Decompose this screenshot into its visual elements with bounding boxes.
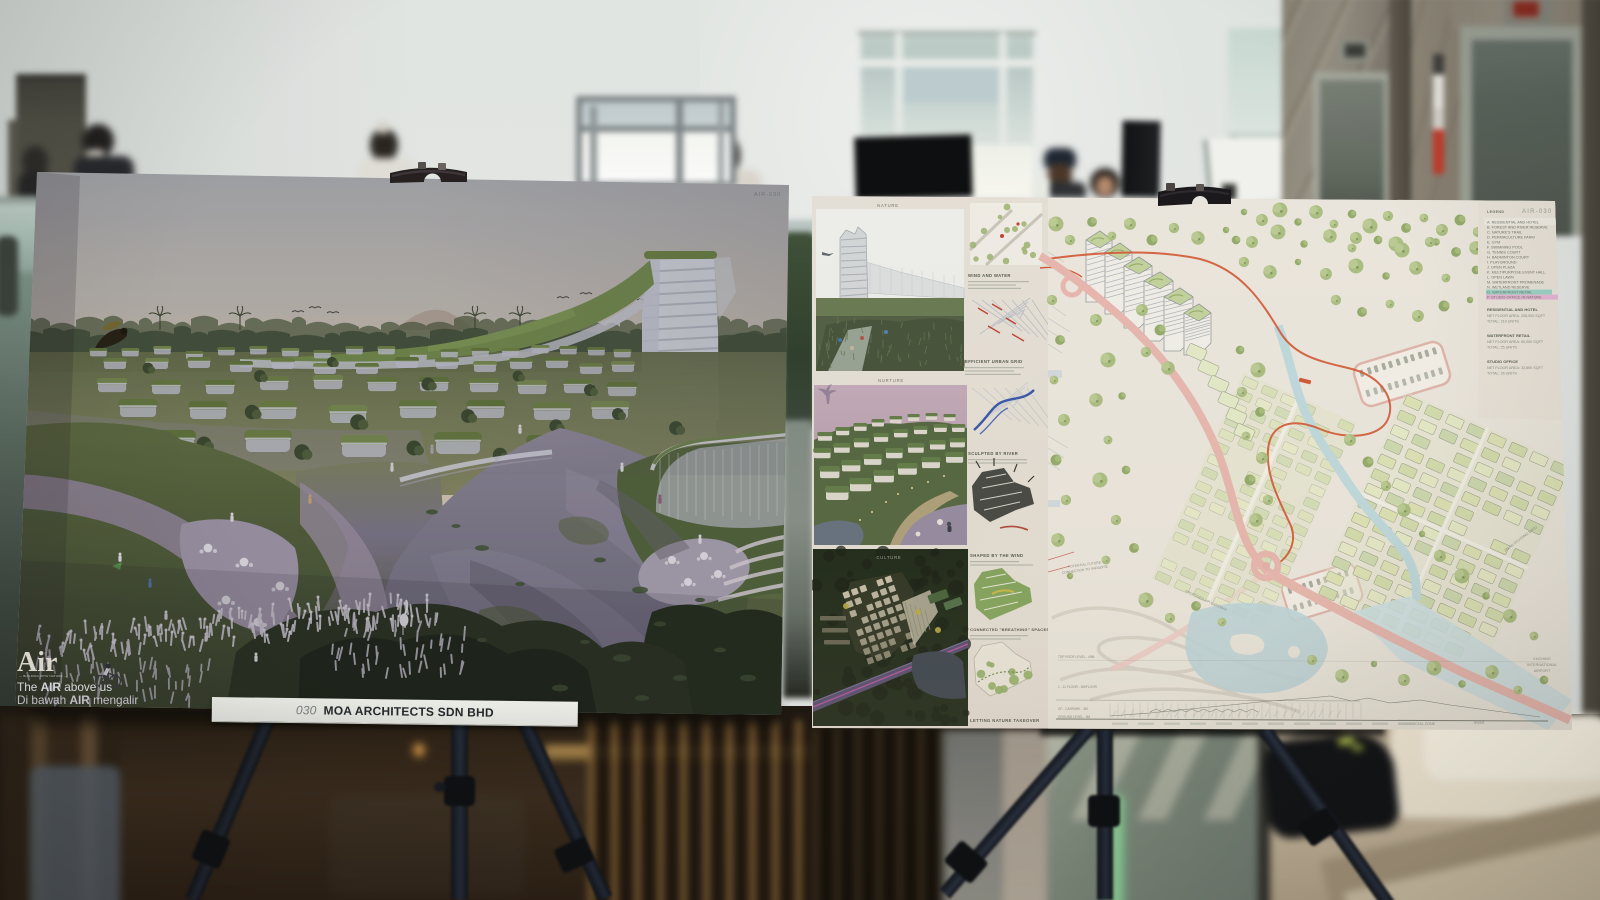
svg-text:Di bawah AIR mengalir: Di bawah AIR mengalir bbox=[17, 693, 138, 707]
svg-text:AIR-030: AIR-030 bbox=[754, 192, 781, 198]
svg-text:The AIR above us: The AIR above us bbox=[17, 680, 112, 694]
svg-text:— BUILDING WITH NATURE —: — BUILDING WITH NATURE — bbox=[19, 674, 67, 678]
